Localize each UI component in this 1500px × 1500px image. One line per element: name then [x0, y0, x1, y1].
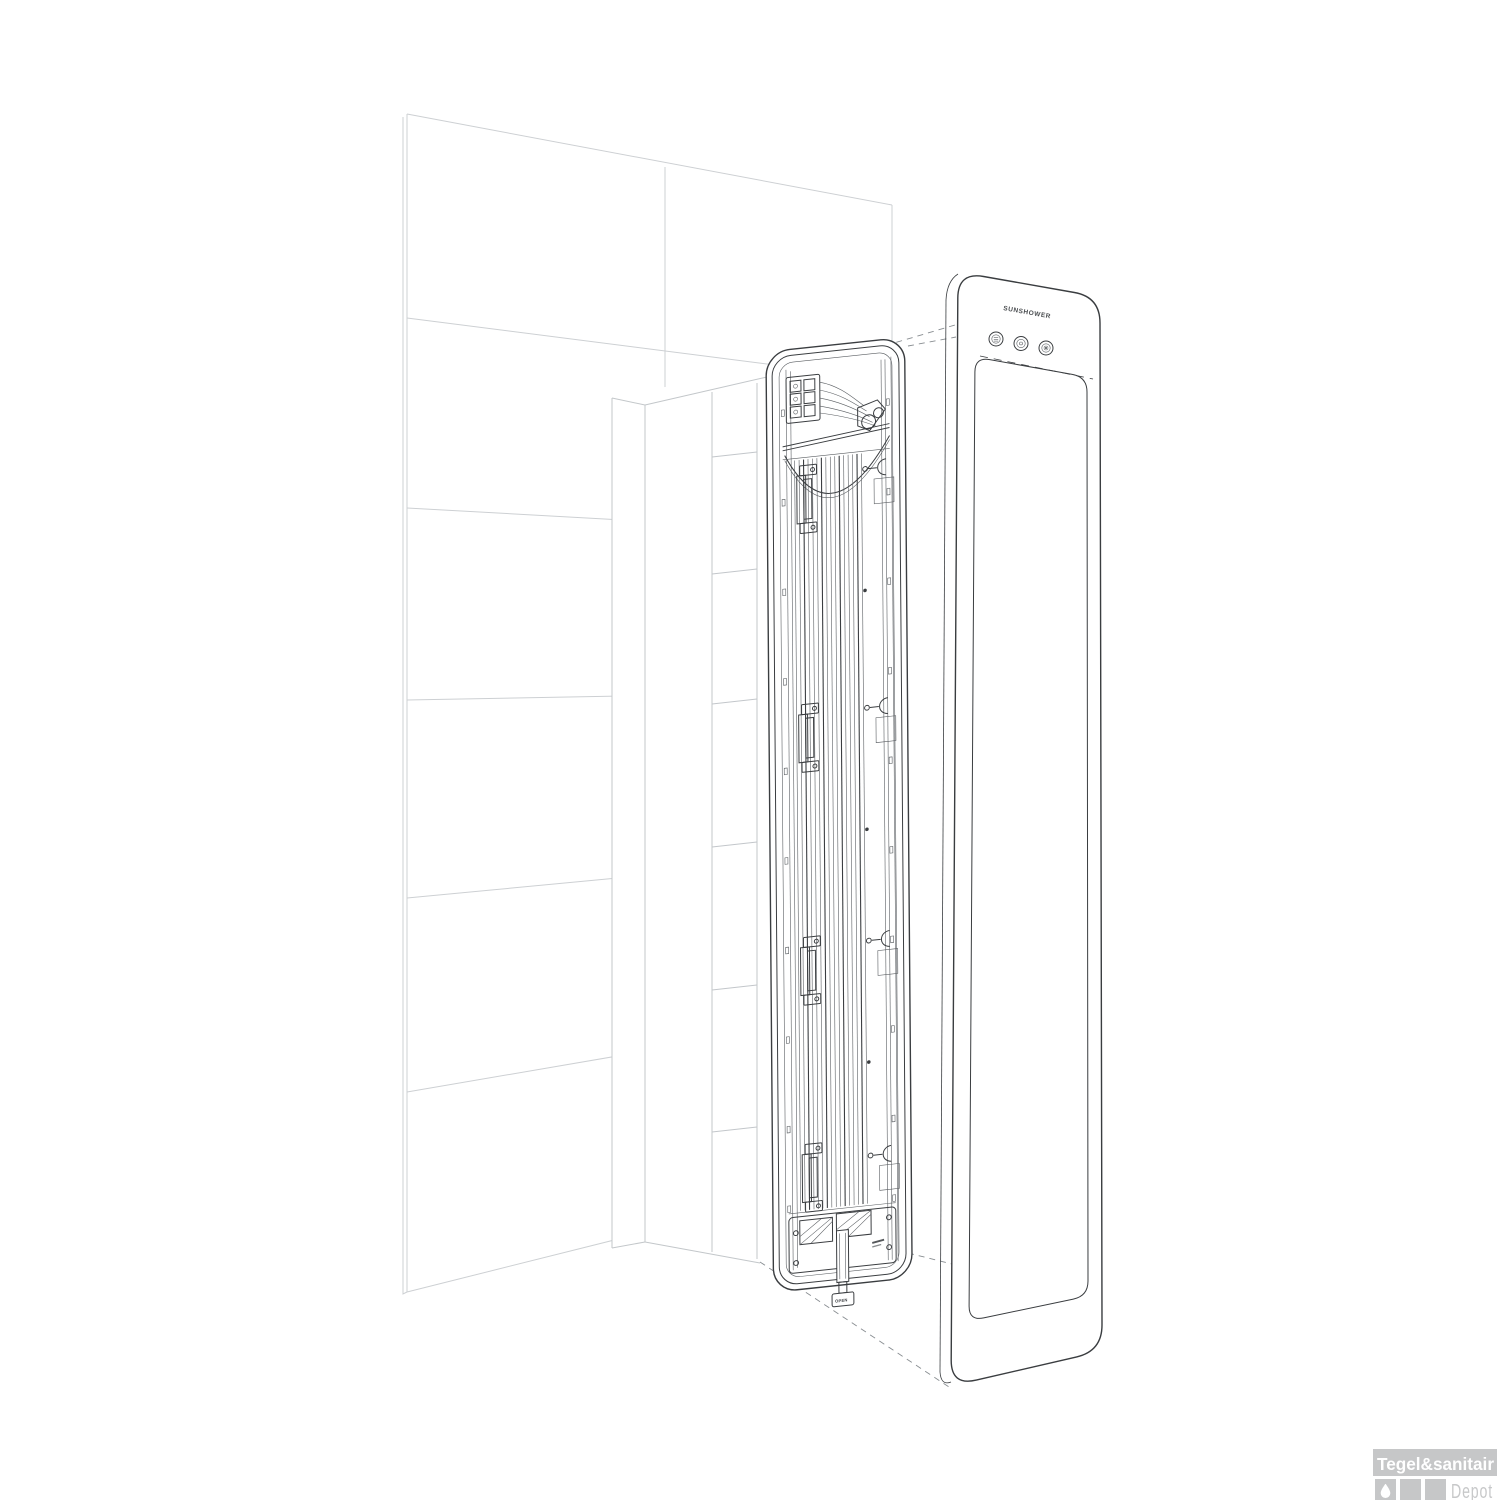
- illustration-canvas: OPEN SUNSHOWER: [0, 0, 1500, 1500]
- logo-subtitle: Depot: [1451, 1481, 1493, 1500]
- sun-icon: [1044, 346, 1049, 351]
- logo-square-2: [1400, 1479, 1421, 1500]
- heater-frame-unit: OPEN: [766, 337, 912, 1313]
- logo-title: Tegel&sanitair: [1377, 1454, 1494, 1474]
- logo-square-3: [1425, 1479, 1446, 1500]
- front-panel: SUNSHOWER: [940, 274, 1102, 1383]
- dealer-logo: Tegel&sanitair Depot: [1373, 1449, 1497, 1500]
